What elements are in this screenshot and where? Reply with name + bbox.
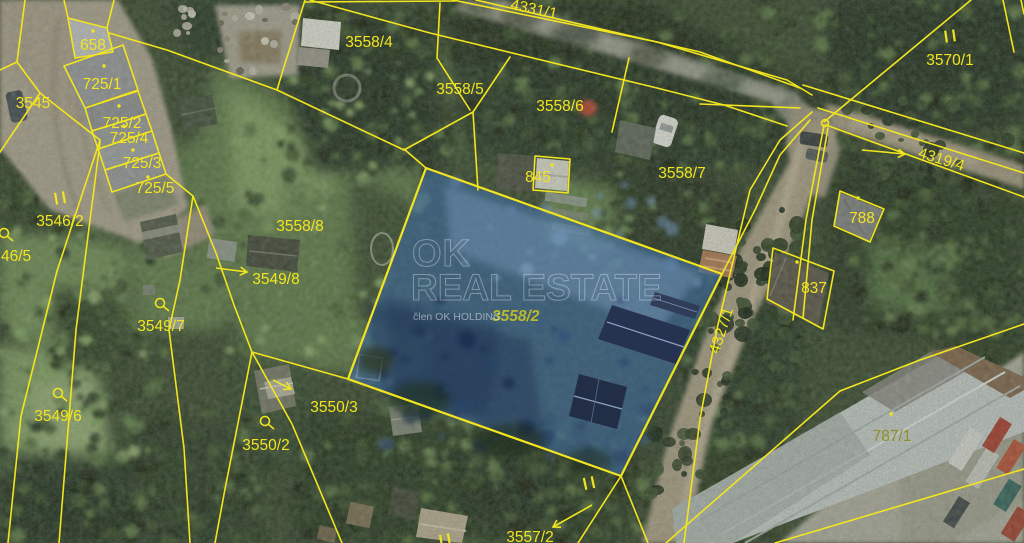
svg-text:3557/2: 3557/2	[506, 529, 553, 543]
svg-text:787/1: 787/1	[873, 428, 912, 445]
svg-text:3550/3: 3550/3	[310, 399, 357, 416]
svg-text:REAL ESTATE: REAL ESTATE	[411, 267, 662, 308]
svg-text:3546/2: 3546/2	[36, 213, 83, 230]
svg-text:3558/5: 3558/5	[436, 81, 483, 98]
svg-text:725/4: 725/4	[110, 130, 149, 147]
svg-text:3558/6: 3558/6	[536, 98, 583, 115]
svg-text:3558/4: 3558/4	[345, 34, 393, 51]
svg-text:837: 837	[801, 280, 827, 297]
svg-text:725/3: 725/3	[123, 155, 162, 172]
svg-text:725/5: 725/5	[136, 180, 175, 197]
svg-text:725/1: 725/1	[83, 76, 122, 93]
svg-text:3550/2: 3550/2	[242, 437, 289, 454]
svg-text:3570/1: 3570/1	[926, 52, 973, 69]
svg-text:3558/8: 3558/8	[276, 218, 323, 235]
svg-text:46/5: 46/5	[1, 248, 31, 265]
svg-text:3558/7: 3558/7	[658, 165, 705, 182]
svg-text:3545: 3545	[16, 95, 50, 112]
svg-text:člen OK HOLDING: člen OK HOLDING	[413, 311, 501, 323]
svg-text:3549/8: 3549/8	[252, 271, 299, 288]
svg-text:658: 658	[80, 37, 106, 54]
svg-text:788: 788	[849, 210, 875, 227]
svg-text:845: 845	[525, 169, 551, 186]
svg-text:3549/7: 3549/7	[137, 318, 184, 335]
svg-text:3549/6: 3549/6	[34, 408, 81, 425]
